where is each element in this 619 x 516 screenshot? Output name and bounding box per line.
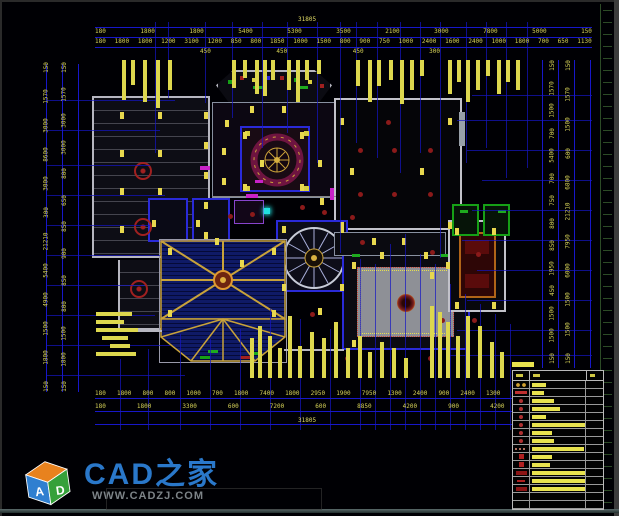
legend-note-cell [586, 421, 599, 428]
watermark-faint-box [106, 488, 322, 510]
dimension-value: 1800 [515, 38, 529, 45]
dimension-value: 1570 [565, 88, 572, 102]
dimension-value: 1800 [115, 38, 129, 45]
dimension-value: 1500 [317, 38, 331, 45]
dimension-value: 4200 [490, 403, 504, 410]
legend-description [530, 405, 586, 412]
dimension-value: 850 [61, 222, 68, 233]
legend-symbol-icon [513, 437, 530, 444]
dimension-value: 5400 [238, 28, 252, 35]
legend-note-cell [586, 381, 599, 388]
legend-note-cell [586, 493, 599, 500]
dimension-value: 1900 [336, 390, 350, 397]
legend-row [513, 477, 603, 485]
legend-note-cell [586, 477, 599, 484]
legend-note-cell [586, 413, 599, 420]
legend-description [530, 437, 586, 444]
dimension-col-right-a: 1501570150070054007007508008501950450150… [546, 62, 558, 362]
dimension-value: 21210 [43, 232, 50, 250]
dimension-value: 800 [61, 301, 68, 312]
legend-symbol-icon [513, 453, 530, 460]
legend-row [513, 485, 603, 493]
dimension-value: 450 [276, 48, 287, 55]
legend-symbol-icon [513, 461, 530, 468]
legend-symbol-icon [513, 477, 530, 484]
dimension-value: 7800 [483, 28, 497, 35]
legend-rows [513, 381, 603, 509]
legend-note-cell [586, 501, 599, 508]
dimension-value: 300 [429, 48, 440, 55]
dimension-value: 1300 [387, 390, 401, 397]
dimension-value: 1000 [293, 38, 307, 45]
dimension-value: 150 [43, 62, 50, 73]
dimension-value: 850 [61, 275, 68, 286]
legend-symbol-icon [513, 405, 530, 412]
dimension-line [78, 64, 79, 392]
legend-description [530, 421, 586, 428]
dimension-value: 6800 [565, 175, 572, 189]
legend-symbol-icon [513, 469, 530, 476]
dimension-value: 700 [538, 38, 549, 45]
legend-description [530, 477, 586, 484]
dimension-value: 7200 [270, 403, 284, 410]
legend-row [513, 469, 603, 477]
dimension-value: 300 [43, 207, 50, 218]
legend-row [513, 405, 603, 413]
legend-row [513, 461, 603, 469]
dimension-value: 1600 [445, 38, 459, 45]
legend-note-cell [586, 469, 599, 476]
legend-row [513, 445, 603, 453]
dimension-value: 1800 [285, 390, 299, 397]
dimension-value: 8600 [43, 147, 50, 161]
cadzj-cube-logo-icon: A D [19, 455, 78, 514]
dimension-value: 600 [565, 148, 572, 159]
dimension-value: 1000 [492, 38, 506, 45]
dimension-line [542, 60, 543, 368]
dimension-col-left-b: 1501570300030008006508509008508001500180… [58, 64, 70, 390]
dimension-col-left-a: 1501570300086003000300212105400490015001… [40, 64, 52, 390]
dimension-col-right-b: 1501570150060068002121079506000150015001… [562, 62, 574, 362]
dimension-value: 450 [200, 48, 211, 55]
dimension-value: 7950 [565, 234, 572, 248]
dimension-value: 150 [549, 60, 556, 71]
dimension-value: 1570 [61, 87, 68, 101]
dimension-value: 180 [95, 403, 106, 410]
dimension-value: 150 [43, 381, 50, 392]
dimension-value: 1130 [577, 38, 591, 45]
legend-header-row [513, 371, 603, 381]
dimension-line [590, 60, 591, 368]
dimension-value: 700 [549, 173, 556, 184]
legend-note-cell [586, 405, 599, 412]
legend-symbol-icon [513, 381, 530, 388]
legend-note-cell [586, 461, 599, 468]
dimension-value: 2950 [311, 390, 325, 397]
legend-row [513, 493, 603, 501]
legend-description [530, 381, 586, 388]
dimension-value: 650 [558, 38, 569, 45]
dimension-value: 2100 [385, 28, 399, 35]
dimension-line [574, 60, 575, 368]
dimension-value: 150 [581, 28, 592, 35]
dimension-value: 5400 [549, 148, 556, 162]
legend-symbol-icon [513, 413, 530, 420]
legend-note-cell [586, 429, 599, 436]
dimension-value: 1500 [565, 117, 572, 131]
dimension-value: 850 [549, 240, 556, 251]
legend-description [530, 453, 586, 460]
dimension-value: 180 [95, 28, 106, 35]
legend-description [530, 429, 586, 436]
dimension-value: 1200 [161, 38, 175, 45]
dimension-value: 21210 [565, 203, 572, 221]
dimension-value: 3000 [61, 113, 68, 127]
legend-table [512, 362, 604, 510]
dimension-value: 1800 [140, 28, 154, 35]
dimension-value: 2400 [413, 390, 427, 397]
dimension-value: 5000 [532, 28, 546, 35]
dimension-value: 2400 [468, 38, 482, 45]
dimension-value: 1500 [565, 322, 572, 336]
dimension-value: 3000 [43, 176, 50, 190]
legend-row [513, 437, 603, 445]
legend-symbol-icon [513, 485, 530, 492]
dimension-value: 900 [438, 390, 449, 397]
dimension-row-top-2: 1801800180012003100120085080018501000150… [95, 38, 592, 45]
legend-description [530, 397, 586, 404]
dimension-value: 5400 [43, 263, 50, 277]
legend-description [530, 445, 586, 452]
dimension-value: 180 [95, 38, 106, 45]
legend-row [513, 413, 603, 421]
dimension-row-top-1: 1801800180054005300350021003000780050001… [95, 28, 592, 35]
overall-dimension-top: 31805 [298, 16, 316, 23]
dimension-value: 2400 [460, 390, 474, 397]
legend-row [513, 397, 603, 405]
legend-row [513, 389, 603, 397]
legend-title-bar [512, 362, 534, 367]
legend-symbol-icon [513, 445, 530, 452]
legend-row [513, 501, 603, 509]
dimension-value: 1850 [270, 38, 284, 45]
dimension-value: 150 [61, 62, 68, 73]
legend-symbol-icon [513, 429, 530, 436]
dimension-value: 1800 [137, 403, 151, 410]
legend-row [513, 381, 603, 389]
legend-description [530, 389, 586, 396]
dimension-value: 1800 [43, 350, 50, 364]
legend-symbol-icon [513, 493, 530, 500]
legend-note-cell [586, 485, 599, 492]
dimension-value: 850 [231, 38, 242, 45]
dimension-value: 1800 [189, 28, 203, 35]
dimension-value: 1200 [208, 38, 222, 45]
dimension-value: 1800 [117, 390, 131, 397]
dimension-value: 1950 [549, 261, 556, 275]
dimension-value: 700 [212, 390, 223, 397]
dimension-value: 3000 [61, 140, 68, 154]
legend-note-cell [586, 437, 599, 444]
dimension-value: 1570 [549, 81, 556, 95]
dimension-value: 8850 [357, 403, 371, 410]
legend-symbol-icon [513, 397, 530, 404]
dimension-value: 1500 [61, 326, 68, 340]
dimension-value: 800 [143, 390, 154, 397]
legend-description [530, 493, 586, 500]
dimension-value: 7400 [260, 390, 274, 397]
dimension-value: 150 [61, 381, 68, 392]
overall-dimension-bottom: 31805 [298, 417, 316, 424]
watermark-brand-text: CAD之家 [84, 458, 219, 492]
dimension-value: 1500 [549, 103, 556, 117]
dimension-value: 4200 [403, 403, 417, 410]
legend-row [513, 421, 603, 429]
legend-description [530, 461, 586, 468]
dimension-value: 1500 [549, 329, 556, 343]
watermark: A D CAD之家 WWW.CADZJ.COM [22, 458, 219, 510]
dimension-value: 3000 [43, 118, 50, 132]
dimension-value: 450 [549, 285, 556, 296]
dimension-value: 180 [95, 390, 106, 397]
dimension-value: 1500 [43, 321, 50, 335]
dimension-row-top-sub: 450450450300 [200, 48, 440, 55]
dimension-value: 7950 [362, 390, 376, 397]
dimension-value: 800 [340, 38, 351, 45]
cad-drawing-canvas: 31805 1801800180054005300350021003000780… [0, 0, 619, 516]
dimension-value: 3100 [184, 38, 198, 45]
legend-note-cell [586, 453, 599, 460]
legend-row [513, 453, 603, 461]
dimension-value: 800 [549, 218, 556, 229]
legend-note-cell [586, 445, 599, 452]
legend-description [530, 469, 586, 476]
dimension-value: 1300 [486, 390, 500, 397]
dimension-value: 1500 [565, 293, 572, 307]
legend-description [530, 413, 586, 420]
dimension-value: 1800 [138, 38, 152, 45]
dimension-value: 750 [379, 38, 390, 45]
dimension-value: 1800 [234, 390, 248, 397]
legend-symbol-icon [513, 501, 530, 508]
dimension-value: 900 [61, 248, 68, 259]
dimension-value: 1000 [186, 390, 200, 397]
legend-row [513, 429, 603, 437]
dimension-value: 3500 [336, 28, 350, 35]
dimension-value: 600 [315, 403, 326, 410]
dimension-value: 800 [250, 38, 261, 45]
dimension-value: 900 [448, 403, 459, 410]
dimension-value: 750 [549, 195, 556, 206]
dimension-value: 3300 [182, 403, 196, 410]
legend-description [530, 501, 586, 508]
legend-description [530, 485, 586, 492]
dimension-value: 1570 [43, 89, 50, 103]
dimension-value: 900 [359, 38, 370, 45]
dimension-value: 3000 [434, 28, 448, 35]
dimension-line [558, 60, 559, 368]
legend-symbol-icon [513, 421, 530, 428]
dimension-value: 650 [61, 195, 68, 206]
dimension-value: 800 [61, 168, 68, 179]
dimension-value: 1500 [549, 306, 556, 320]
dimension-value: 1000 [399, 38, 413, 45]
legend-note-cell [586, 389, 599, 396]
dimension-value: 600 [228, 403, 239, 410]
dimension-value: 5300 [287, 28, 301, 35]
legend-symbol-icon [513, 389, 530, 396]
dimension-value: 700 [549, 128, 556, 139]
legend-note-cell [586, 397, 599, 404]
dimension-value: 800 [164, 390, 175, 397]
dimension-value: 450 [353, 48, 364, 55]
dimension-value: 4900 [43, 292, 50, 306]
dimension-value: 2400 [422, 38, 436, 45]
dimension-value: 150 [565, 60, 572, 71]
dimension-value: 6000 [565, 263, 572, 277]
legend-grid [512, 370, 604, 510]
dimension-value: 1800 [61, 353, 68, 367]
